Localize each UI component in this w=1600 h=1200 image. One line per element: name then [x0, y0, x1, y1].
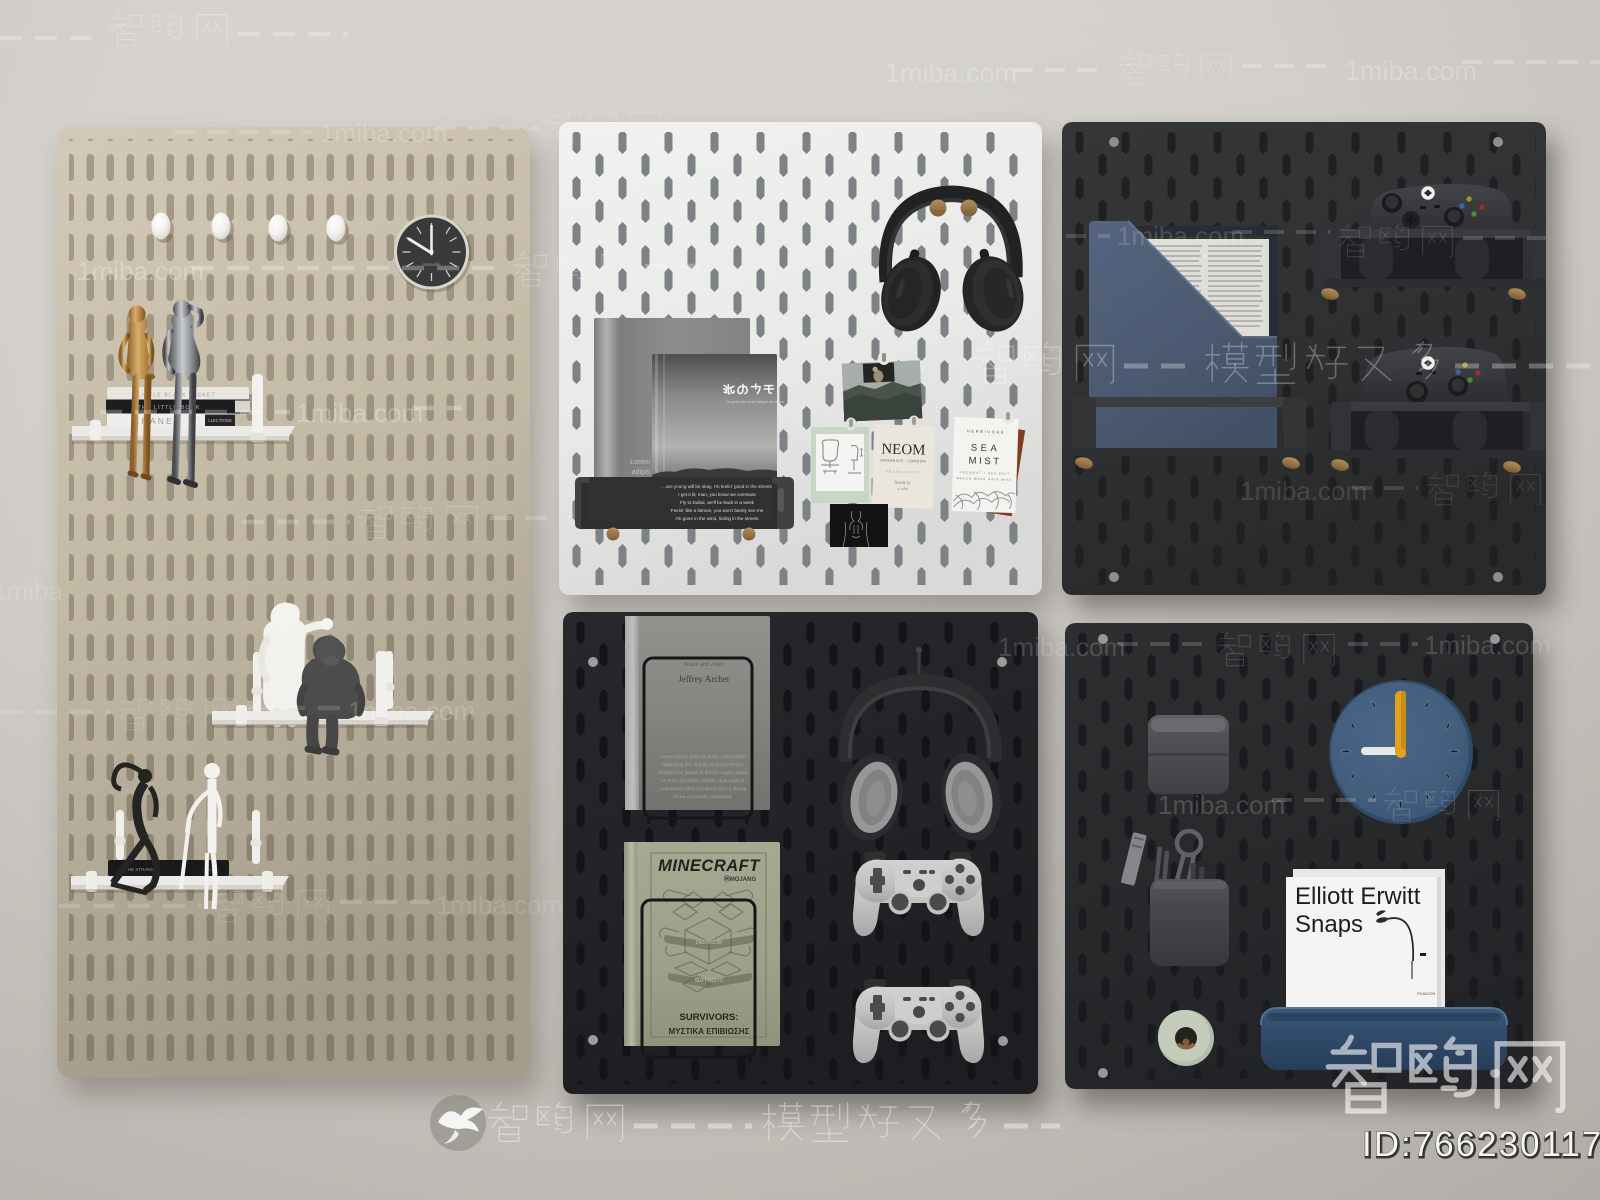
svg-text:1miba.com: 1miba.com	[1158, 790, 1285, 820]
svg-text:1miba.com: 1miba.com	[1117, 221, 1244, 251]
svg-text:1miba.com: 1miba.com	[348, 696, 475, 726]
svg-text:1miba.com: 1miba.com	[1240, 476, 1367, 506]
svg-text:1miba.com: 1miba.com	[320, 118, 447, 148]
svg-text:1miba.com: 1miba.com	[436, 890, 563, 920]
svg-text:1miba.com: 1miba.com	[998, 632, 1125, 662]
svg-text:1miba.com: 1miba.com	[1345, 56, 1477, 86]
svg-text:1miba.com: 1miba.com	[1424, 630, 1551, 660]
svg-text:1miba.com: 1miba.com	[296, 398, 423, 428]
svg-text:ID:766230117: ID:766230117	[1362, 1125, 1600, 1164]
svg-text:1miba: 1miba	[0, 576, 63, 606]
svg-text:1miba.com: 1miba.com	[885, 58, 1017, 88]
svg-text:1miba.com: 1miba.com	[77, 256, 204, 286]
